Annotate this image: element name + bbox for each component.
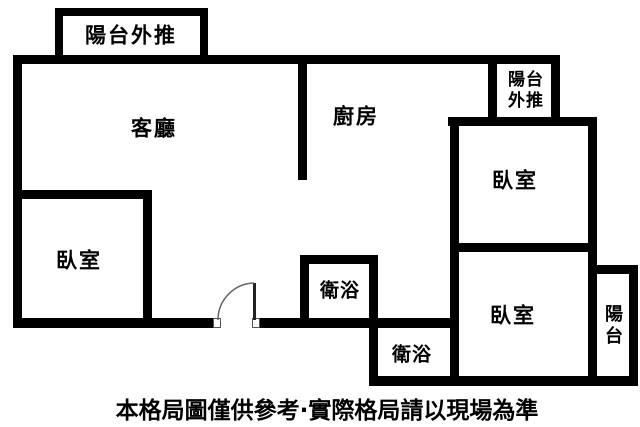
wall-bedroom-ur-top xyxy=(448,117,597,126)
wall-balcony-right-right xyxy=(629,265,638,386)
room-label-balcony-top-right: 陽台 外推 xyxy=(508,70,544,112)
wall-bathrooms-shared-vertical xyxy=(369,255,378,386)
room-label-balcony-top-left: 陽台外推 xyxy=(85,26,177,47)
balcony-right-char2: 台 xyxy=(605,326,623,348)
room-label-bedroom-top-right: 臥室 xyxy=(492,171,538,192)
room-label-bedroom-bottom-right: 臥室 xyxy=(490,306,536,327)
door-swing-arc xyxy=(0,0,640,427)
wall-living-kitchen-divider xyxy=(298,55,307,180)
wall-bedroom-left-top xyxy=(13,190,152,199)
wall-balcony-tr-left xyxy=(488,55,497,125)
wall-bedroom-left-right xyxy=(143,190,152,328)
wall-bottom-mid-segment xyxy=(260,318,458,328)
wall-bedroom-divider xyxy=(450,243,597,252)
wall-bottom-left-segment xyxy=(13,318,216,328)
wall-bathroom-upper-left xyxy=(300,255,309,328)
disclaimer-text: 本格局圖僅供參考·實際格局請以現場為準 xyxy=(116,391,539,425)
balcony-top-right-line1: 陽台 xyxy=(508,70,544,91)
wall-outer-top xyxy=(13,55,560,64)
room-label-living-room: 客廳 xyxy=(131,119,177,140)
wall-bathroom-upper-top xyxy=(300,255,378,264)
door-leaf xyxy=(253,283,256,320)
wall-balcony-tr-right xyxy=(551,55,560,125)
wall-bottom-right-segment xyxy=(369,376,638,386)
floor-plan: 陽台外推 客廳 廚房 陽台 外推 臥室 臥室 衛浴 衛浴 臥室 陽 台 本格局圖… xyxy=(0,0,640,427)
balcony-right-char1: 陽 xyxy=(605,304,623,326)
room-label-bedroom-left: 臥室 xyxy=(56,251,102,272)
balcony-top-right-line2: 外推 xyxy=(508,91,544,112)
room-label-bathroom-upper: 衛浴 xyxy=(320,282,360,301)
room-label-bathroom-lower: 衛浴 xyxy=(392,346,432,365)
room-label-balcony-right: 陽 台 xyxy=(605,304,623,348)
room-label-kitchen: 廚房 xyxy=(333,107,379,128)
door-jamb-left xyxy=(213,318,221,328)
